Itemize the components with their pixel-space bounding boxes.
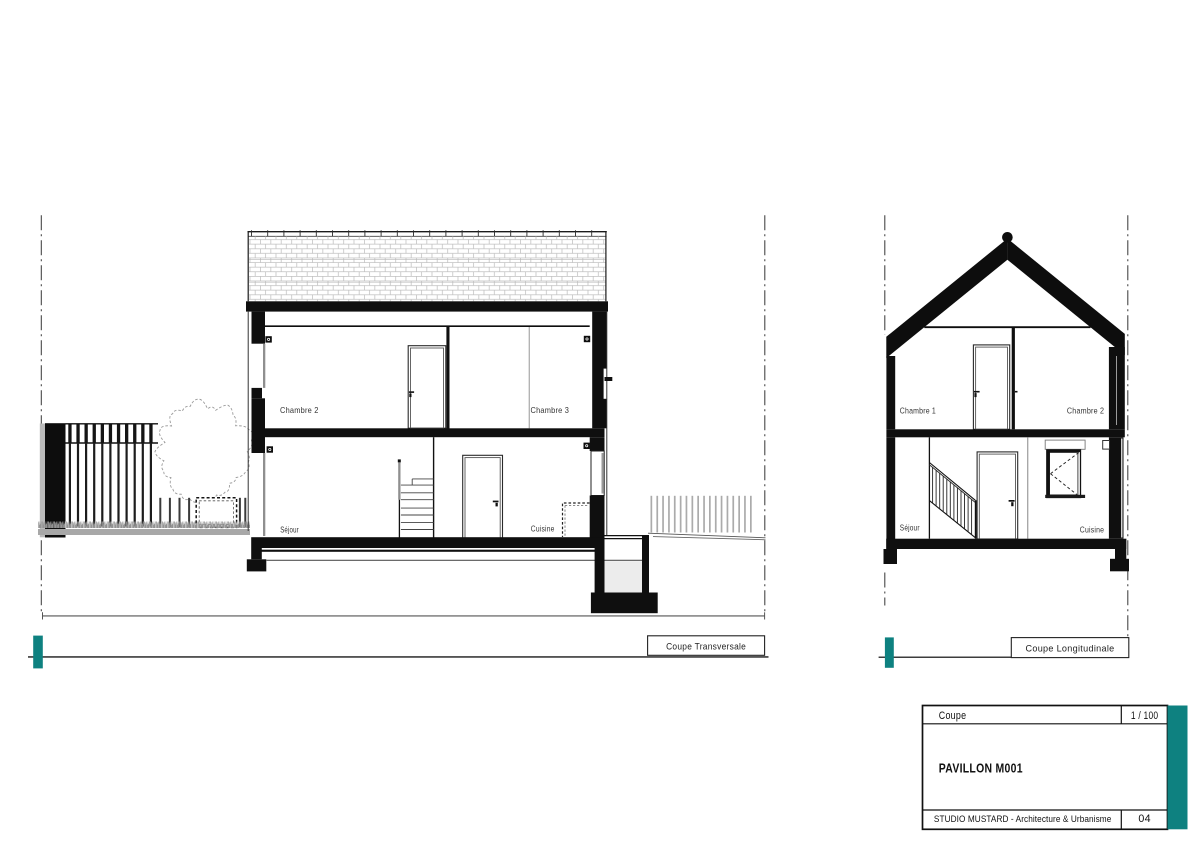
svg-text:Chambre 2: Chambre 2 (280, 405, 319, 415)
svg-text:Cuisine: Cuisine (1080, 524, 1104, 534)
svg-text:Chambre 1: Chambre 1 (900, 406, 936, 416)
svg-text:Coupe: Coupe (939, 710, 967, 722)
svg-text:1 / 100: 1 / 100 (1131, 710, 1159, 722)
svg-text:Cuisine: Cuisine (531, 524, 555, 534)
svg-text:Chambre 2: Chambre 2 (1067, 406, 1104, 416)
svg-text:PAVILLON M001: PAVILLON M001 (939, 760, 1023, 775)
svg-text:Séjour: Séjour (900, 522, 920, 532)
svg-text:Coupe Transversale: Coupe Transversale (666, 641, 746, 651)
svg-text:Séjour: Séjour (280, 525, 299, 535)
svg-text:Coupe Longitudinale: Coupe Longitudinale (1026, 643, 1115, 653)
svg-text:STUDIO MUSTARD - Architecture: STUDIO MUSTARD - Architecture & Urbanism… (934, 814, 1112, 825)
svg-text:04: 04 (1138, 813, 1151, 825)
svg-text:Chambre 3: Chambre 3 (531, 405, 570, 415)
